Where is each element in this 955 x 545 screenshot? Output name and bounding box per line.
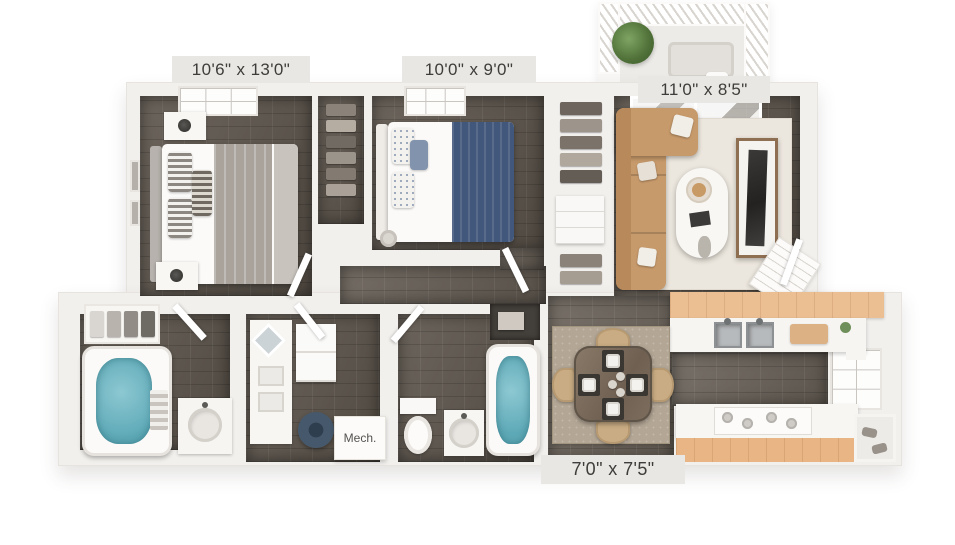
closet-shelf-item bbox=[326, 184, 356, 196]
plate bbox=[606, 402, 620, 416]
wall-art bbox=[130, 160, 140, 192]
counter-plant bbox=[840, 322, 851, 333]
kitchen-floor bbox=[672, 352, 828, 406]
closet-shelf-item bbox=[326, 104, 356, 116]
toilet-tank bbox=[400, 398, 436, 414]
second-bed-headboard bbox=[376, 124, 388, 240]
faucet bbox=[724, 318, 731, 325]
vanity-sink bbox=[258, 392, 284, 412]
table-lamp bbox=[170, 269, 183, 282]
cutting-board bbox=[790, 324, 828, 344]
table-lamp bbox=[178, 119, 191, 132]
accent-pillow bbox=[192, 170, 212, 216]
decor-book bbox=[689, 211, 711, 228]
table-centerpiece bbox=[616, 372, 625, 381]
decor-pastry bbox=[692, 183, 706, 197]
water-heater bbox=[298, 412, 334, 448]
mechanical-label-text: Mech. bbox=[344, 431, 377, 445]
potted-plant bbox=[612, 22, 654, 64]
wall-art bbox=[130, 200, 140, 226]
closet-shelf-item bbox=[326, 136, 356, 148]
bathroom-2-sink bbox=[449, 418, 479, 448]
primary-bedroom-dimension-label: 10'6" x 13'0" bbox=[172, 56, 310, 83]
burner bbox=[786, 418, 797, 429]
second-bedroom-window bbox=[404, 86, 466, 116]
kitchen-upper-cabinet-face bbox=[670, 292, 884, 318]
pillow bbox=[168, 152, 192, 192]
living-room-dimension-label: 11'0" x 8'5" bbox=[638, 76, 770, 103]
closet-shelf-item bbox=[326, 120, 356, 132]
primary-bed-foot-fold bbox=[274, 144, 298, 284]
closet-shelf-item bbox=[560, 102, 602, 115]
pillow bbox=[392, 172, 414, 208]
floor-plan: Mech. 10'6" x 13'0" 10'0" x 9'0" 11'0" x… bbox=[0, 0, 955, 545]
sofa-backrest bbox=[616, 108, 631, 290]
television bbox=[745, 150, 767, 247]
bathtub-water bbox=[96, 358, 152, 444]
kitchen-sink-left bbox=[714, 322, 742, 348]
decor-vase bbox=[698, 236, 711, 258]
plate bbox=[582, 378, 596, 392]
pillow bbox=[168, 198, 192, 238]
accent-pillow bbox=[410, 140, 428, 170]
plate bbox=[606, 354, 620, 368]
toilet-bowl bbox=[404, 416, 432, 454]
table-centerpiece bbox=[616, 388, 625, 397]
closet-shelf-item bbox=[326, 168, 356, 180]
closet-shelf-item bbox=[560, 271, 602, 284]
closet-shelf-item bbox=[560, 136, 602, 149]
mechanical-closet-label: Mech. bbox=[334, 416, 386, 460]
towel bbox=[90, 311, 104, 337]
faucet bbox=[202, 402, 208, 408]
dining-chair bbox=[650, 368, 674, 402]
towel bbox=[124, 311, 138, 337]
primary-bed-blanket bbox=[214, 144, 272, 284]
closet-shelf-item bbox=[560, 119, 602, 132]
faucet bbox=[461, 413, 467, 419]
dining-chair bbox=[596, 420, 630, 444]
burner bbox=[766, 412, 777, 423]
second-bed-navy-blanket bbox=[452, 122, 514, 242]
entry-closet bbox=[854, 414, 896, 462]
burner bbox=[722, 412, 733, 423]
closet-shelf-item bbox=[560, 254, 602, 267]
faucet bbox=[756, 318, 763, 325]
laundry-basket bbox=[380, 230, 397, 247]
tub-towel bbox=[150, 390, 168, 430]
second-bedroom-dimension-label: 10'0" x 9'0" bbox=[402, 56, 536, 83]
dining-chair bbox=[552, 368, 576, 402]
kitchen-lower-cabinet-face bbox=[676, 438, 858, 462]
bathtub-water bbox=[496, 356, 530, 444]
table-centerpiece bbox=[608, 380, 617, 389]
burner bbox=[742, 418, 753, 429]
throw-pillow bbox=[637, 247, 657, 267]
bathroom-1-sink bbox=[188, 408, 222, 442]
dining-dimension-label: 7'0" x 7'5" bbox=[541, 455, 685, 484]
plate bbox=[630, 378, 644, 392]
vanity-sink bbox=[258, 366, 284, 386]
closet-dresser bbox=[556, 196, 604, 244]
niche-basket bbox=[498, 312, 524, 330]
kitchen-sink-right bbox=[746, 322, 774, 348]
closet-shelf-item bbox=[560, 170, 602, 183]
throw-pillow bbox=[637, 161, 658, 182]
closet-shelf-item bbox=[560, 153, 602, 166]
towel bbox=[107, 311, 121, 337]
towel bbox=[141, 311, 155, 337]
closet-shelf-item bbox=[326, 152, 356, 164]
